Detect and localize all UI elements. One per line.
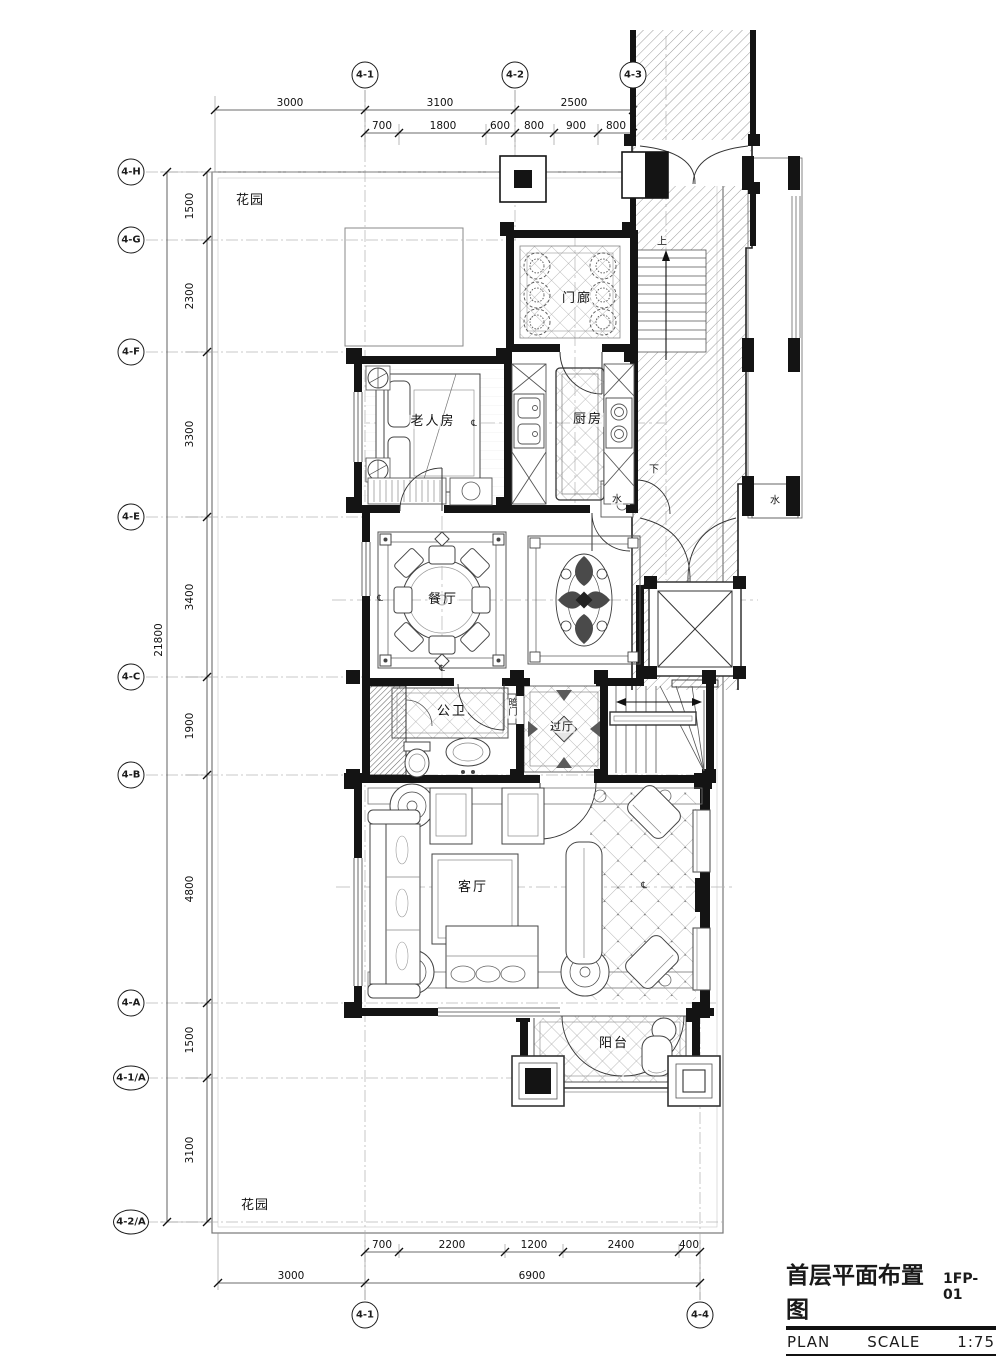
drawing-number: 1FP-01 — [943, 1271, 996, 1303]
scale-label: SCALE — [867, 1333, 920, 1351]
dim-bottom2-6900: 6900 — [517, 1270, 548, 1282]
dim-bottom1-700: 700 — [370, 1239, 394, 1251]
grid-bubble-left-g: 4-G — [118, 227, 145, 254]
dim-top2-600: 600 — [488, 120, 512, 132]
grid-bubble-bottom-1: 4-1 — [352, 1302, 379, 1329]
plan-label: PLAN — [787, 1333, 830, 1351]
dim-bottom1-2200: 2200 — [437, 1239, 468, 1251]
elder-room-furniture — [366, 366, 492, 511]
grid-bubble-left-a: 4-A — [118, 990, 145, 1017]
elevator — [649, 582, 741, 687]
centerline-symbol-elder: ℄ — [471, 419, 477, 429]
title-block: 首层平面布置图1FP-01 PLAN SCALE 1:75 — [786, 1256, 996, 1356]
room-label-balcony: 阳台 — [598, 1037, 630, 1051]
centerline-symbol-dining-left: ℄ — [377, 594, 383, 604]
grid-bubble-bottom-4: 4-4 — [687, 1302, 714, 1329]
room-label-bath: 公卫 — [436, 705, 468, 719]
grid-bubble-left-2a: 4-2/A — [113, 1210, 149, 1235]
dim-top1-2500: 2500 — [559, 97, 590, 109]
kitchen-fixtures — [512, 364, 634, 551]
dim-left-3400: 3400 — [184, 584, 196, 611]
dim-left-total-21800: 21800 — [153, 623, 165, 656]
room-label-dining: 餐厅 — [427, 593, 459, 607]
dim-left-1900: 1900 — [184, 713, 196, 740]
centerline-symbol-dining-bottom: ℄ — [439, 664, 445, 674]
centerline-symbol-living: ℄ — [641, 881, 647, 891]
dim-top1-3000: 3000 — [275, 97, 306, 109]
room-label-hidden-door: 暗门 — [506, 700, 521, 719]
scale-value: 1:75 — [957, 1333, 995, 1351]
interior-stair — [610, 686, 704, 773]
dim-left-2300: 2300 — [184, 283, 196, 310]
dim-bottom1-1200: 1200 — [519, 1239, 550, 1251]
water-label-right: 水 — [769, 496, 781, 507]
dim-top2-900: 900 — [564, 120, 588, 132]
dim-top2-800b: 800 — [604, 120, 628, 132]
grid-bubble-left-h: 4-H — [118, 159, 145, 186]
dim-left-1500a: 1500 — [184, 193, 196, 220]
grid-bubble-top-3: 4-3 — [620, 62, 647, 89]
dim-top1-3100: 3100 — [425, 97, 456, 109]
dim-top2-700: 700 — [370, 120, 394, 132]
grid-bubble-top-1: 4-1 — [352, 62, 379, 89]
dim-top2-1800: 1800 — [428, 120, 459, 132]
room-label-garden-top: 花园 — [235, 194, 265, 208]
title-rule — [786, 1326, 996, 1330]
room-label-elder: 老人房 — [409, 415, 456, 429]
dim-bottom1-400: 400 — [677, 1239, 701, 1251]
grid-bubble-left-b: 4-B — [118, 762, 145, 789]
water-label-left: 水 — [611, 495, 623, 506]
grid-bubble-left-e: 4-E — [118, 504, 145, 531]
grid-bubble-top-2: 4-2 — [502, 62, 529, 89]
grid-bubble-left-c: 4-C — [118, 664, 145, 691]
floor-plan-sheet: 4-1 4-2 4-3 4-H 4-G 4-F 4-E 4-C 4-B 4-A … — [0, 0, 1000, 1333]
room-label-passage: 过厅 — [549, 721, 575, 733]
room-label-garden-bottom: 花园 — [240, 1199, 270, 1213]
stair-down-label: 下 — [648, 465, 660, 476]
room-label-living: 客厅 — [457, 881, 489, 895]
dim-left-3100: 3100 — [184, 1137, 196, 1164]
stair-up-label: 上 — [656, 237, 668, 248]
grid-bubble-left-f: 4-F — [118, 339, 145, 366]
top-column-bases — [500, 152, 668, 202]
drawing-title: 首层平面布置图 — [786, 1256, 942, 1324]
room-label-kitchen: 厨房 — [572, 413, 604, 427]
dim-left-1500b: 1500 — [184, 1027, 196, 1054]
dim-top2-800a: 800 — [522, 120, 546, 132]
plan-drawing — [0, 0, 1000, 1333]
dim-left-4800: 4800 — [184, 876, 196, 903]
grid-bubble-left-1a: 4-1/A — [113, 1066, 149, 1091]
room-label-porch: 门廊 — [561, 292, 593, 306]
dim-left-3300: 3300 — [184, 421, 196, 448]
dim-bottom2-3000: 3000 — [276, 1270, 307, 1282]
dim-bottom1-2400: 2400 — [606, 1239, 637, 1251]
